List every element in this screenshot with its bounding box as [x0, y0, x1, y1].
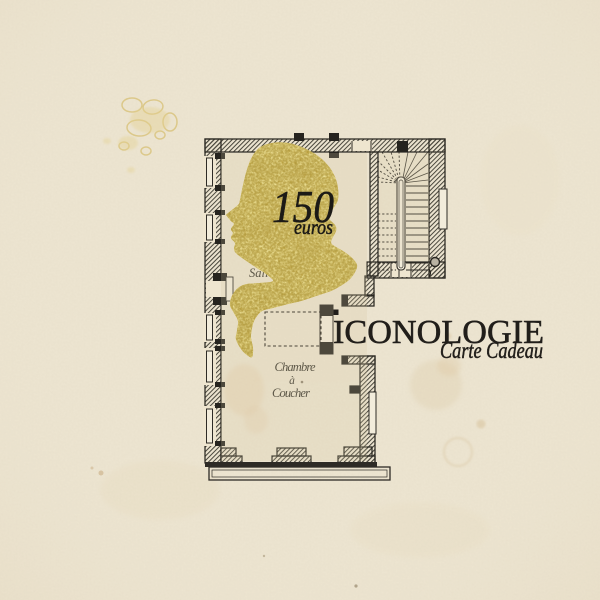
svg-text:Carte Cadeau: Carte Cadeau — [440, 338, 543, 363]
svg-text:euros: euros — [294, 215, 333, 239]
